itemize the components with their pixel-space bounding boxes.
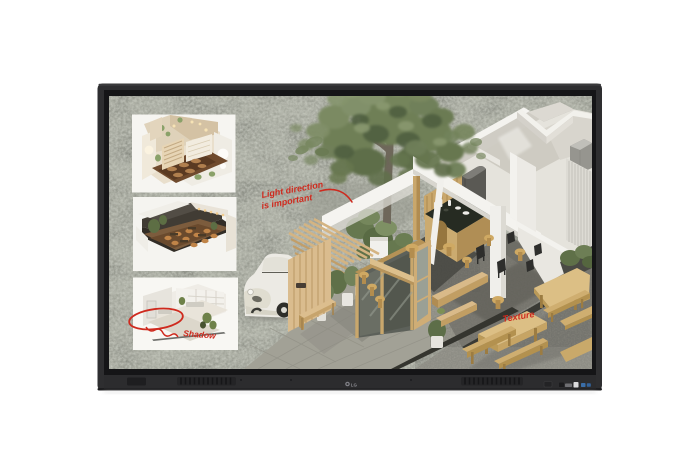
svg-text:LG: LG — [351, 382, 358, 387]
